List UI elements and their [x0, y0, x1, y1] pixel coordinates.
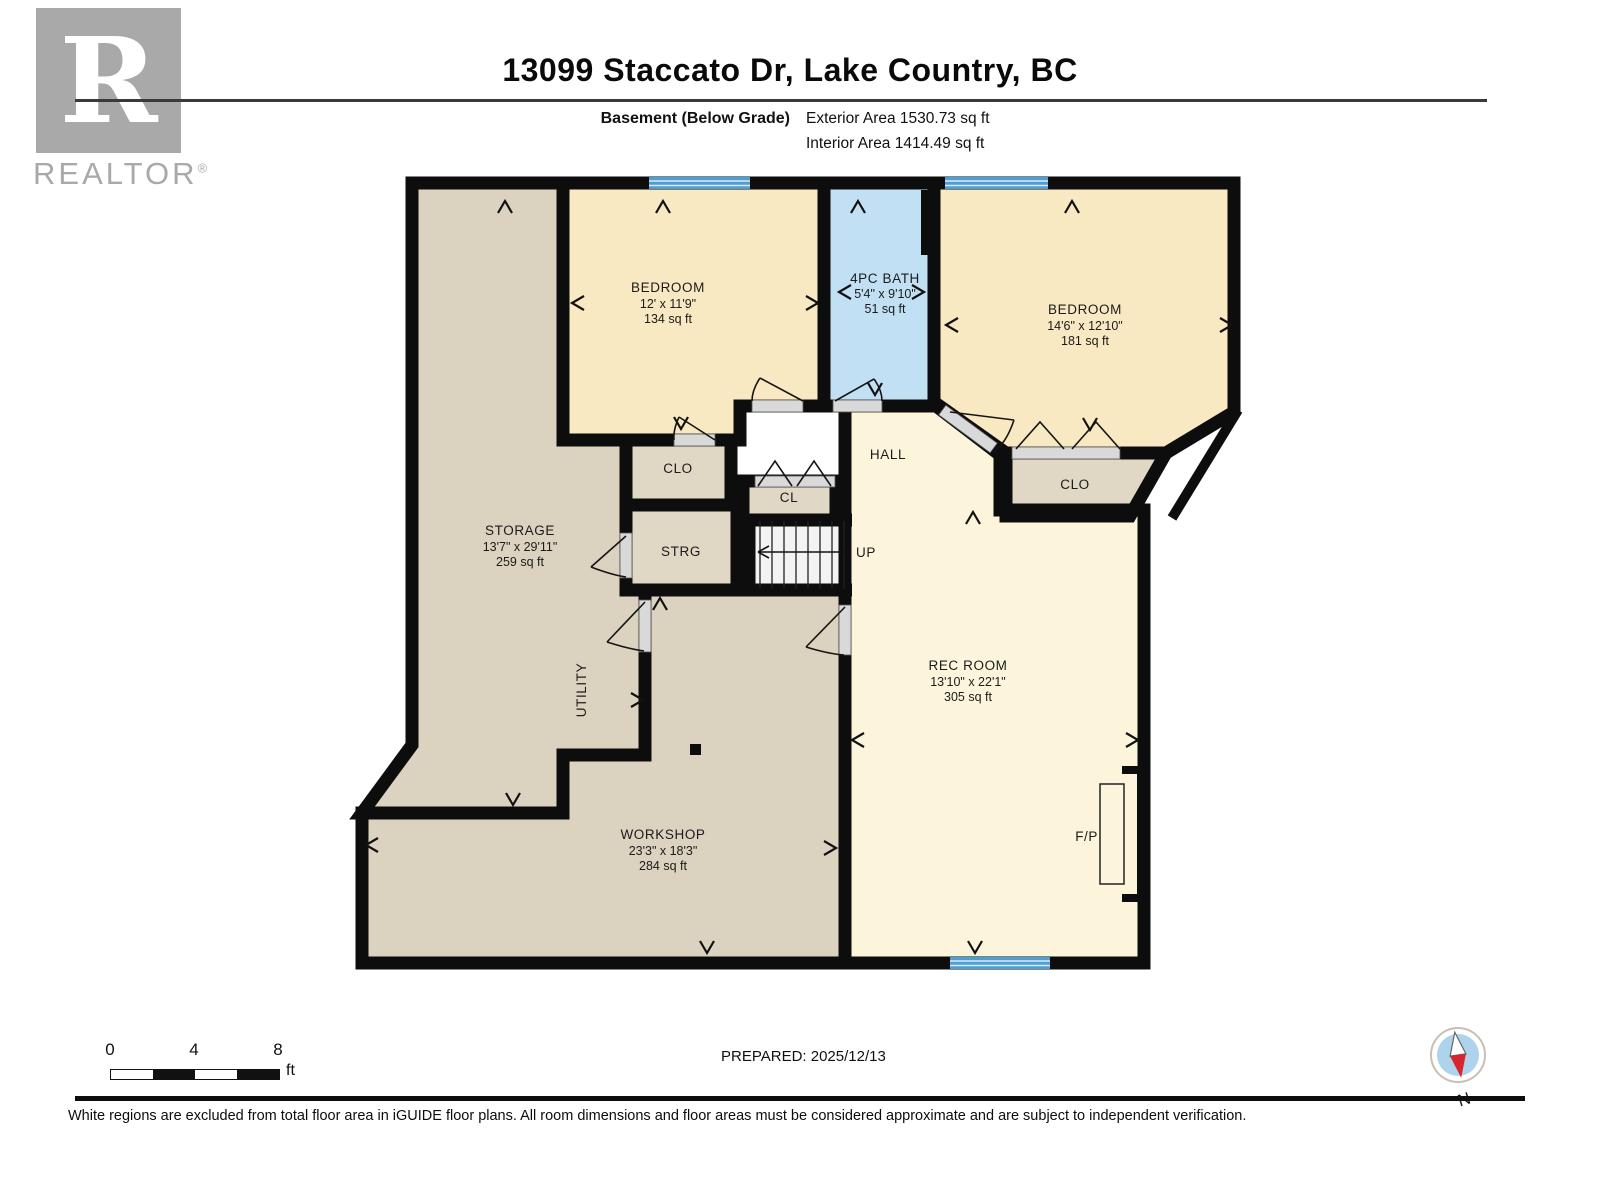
- workshop-rec-door: [839, 605, 851, 655]
- floorplan-drawing: BEDROOM 12' x 11'9" 134 sq ft 4PC BATH 5…: [0, 0, 1600, 1200]
- compass-north-label: N: [1455, 1089, 1473, 1111]
- rec-room-label: REC ROOM: [928, 658, 1007, 673]
- bedroom1-label: BEDROOM: [631, 280, 705, 295]
- scale-tick-0: 0: [96, 1040, 124, 1060]
- bedroom2-label: BEDROOM: [1048, 302, 1122, 317]
- workshop-label: WORKSHOP: [620, 827, 705, 842]
- workshop-area: 284 sq ft: [639, 859, 687, 873]
- bath-wall-stub: [921, 190, 940, 255]
- scale-bar: [110, 1069, 280, 1080]
- bath-door: [833, 400, 882, 412]
- window: [945, 177, 1048, 189]
- bath-label: 4PC BATH: [850, 271, 920, 286]
- storage-label: STORAGE: [485, 523, 555, 538]
- bedroom1-area: 134 sq ft: [644, 312, 692, 326]
- bedroom2-area: 181 sq ft: [1061, 334, 1109, 348]
- storage-area: 259 sq ft: [496, 555, 544, 569]
- utility-door: [639, 600, 651, 652]
- clo-left-label: CLO: [663, 461, 693, 476]
- window: [649, 177, 750, 189]
- window: [950, 957, 1050, 969]
- strg-label: STRG: [661, 544, 701, 559]
- footer-divider: [75, 1096, 1525, 1101]
- scale-bar-ticks: 0 4 8: [96, 1040, 296, 1060]
- cl-label: CL: [780, 490, 798, 505]
- disclaimer-text: White regions are excluded from total fl…: [68, 1108, 1246, 1124]
- bedroom1-dims: 12' x 11'9": [640, 297, 696, 311]
- scale-unit: ft: [286, 1062, 295, 1080]
- up-label: UP: [856, 545, 876, 560]
- rec-room-area: 305 sq ft: [944, 690, 992, 704]
- fireplace-label: F/P: [1075, 829, 1098, 844]
- utility-label: UTILITY: [574, 663, 589, 717]
- clo-right-door: [1012, 447, 1120, 459]
- fireplace-icon: [1100, 766, 1144, 902]
- compass-icon: N: [1420, 1019, 1504, 1115]
- workshop-dims: 23'3" x 18'3": [629, 844, 698, 858]
- hall-label: HALL: [870, 447, 906, 462]
- bath-area: 51 sq ft: [865, 302, 907, 316]
- prepared-date: PREPARED: 2025/12/13: [721, 1048, 886, 1065]
- rec-room-dims: 13'10" x 22'1": [930, 675, 1006, 689]
- realtor-logo-letter: R: [59, 22, 157, 140]
- column-post-icon: [690, 744, 701, 755]
- realtor-logo-icon: R: [36, 8, 181, 153]
- storage-dims: 13'7" x 29'11": [483, 540, 558, 554]
- bath-dims: 5'4" x 9'10": [854, 287, 916, 301]
- scale-tick-4: 4: [180, 1040, 208, 1060]
- title-divider: [75, 99, 1487, 102]
- bedroom2-floor: [934, 183, 1234, 453]
- cl-door: [755, 476, 835, 487]
- bedroom2-dims: 14'6" x 12'10": [1047, 319, 1123, 333]
- scale-tick-8: 8: [264, 1040, 292, 1060]
- floorplan-page: 13099 Staccato Dr, Lake Country, BC Base…: [0, 0, 1600, 1200]
- bedroom1-door: [752, 400, 803, 412]
- clo-right-label: CLO: [1060, 477, 1090, 492]
